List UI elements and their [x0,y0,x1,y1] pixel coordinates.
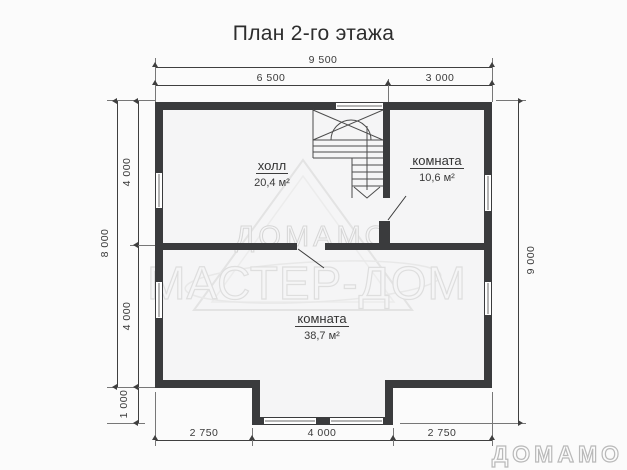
room-label-bedroom-large: комната 38,7 м² [267,310,377,342]
floor-plan-page: План 2-го этажа ДОМАМО МАСТЕР-ДОМ [0,0,627,470]
room-area: 10,6 м² [382,172,492,184]
room-label-bedroom-small: комната 10,6 м² [382,152,492,184]
brand-logo-text: ДОМАМО [492,441,623,467]
brand-logo: ДОМАМО [470,438,627,470]
room-label-hall: холл 20,4 м² [217,157,327,189]
room-name: холл [256,158,288,174]
room-name: комната [410,153,463,169]
chimney-leader-line [388,196,406,220]
room-area: 38,7 м² [267,330,377,342]
room-area: 20,4 м² [217,177,327,189]
door-swing-line [298,249,324,268]
room-name: комната [295,311,348,327]
plan-annotations [0,0,627,470]
